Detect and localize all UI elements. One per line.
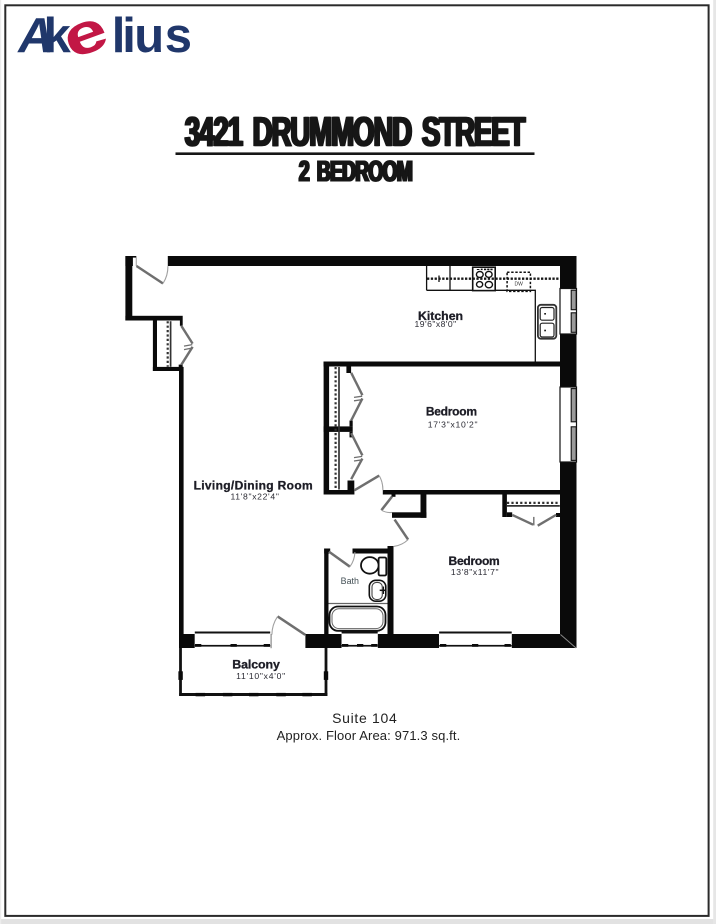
svg-text:Bedroom: Bedroom — [426, 405, 477, 419]
svg-text:17'3"x10'2": 17'3"x10'2" — [428, 420, 479, 430]
svg-text:2 BEDROOM: 2 BEDROOM — [299, 156, 412, 188]
svg-text:Balcony: Balcony — [232, 657, 280, 671]
svg-text:u: u — [134, 9, 164, 63]
svg-text:Suite 104: Suite 104 — [332, 710, 397, 726]
svg-text:DW: DW — [515, 282, 524, 288]
svg-text:Bedroom: Bedroom — [449, 554, 500, 568]
svg-text:s: s — [165, 9, 192, 63]
svg-text:3421 DRUMMOND STREET: 3421 DRUMMOND STREET — [185, 109, 525, 155]
svg-text:13'8"x11'7": 13'8"x11'7" — [451, 567, 499, 577]
svg-text:11'8"x22'4": 11'8"x22'4" — [230, 491, 279, 501]
svg-text:Bath: Bath — [341, 576, 359, 586]
svg-text:Approx. Floor Area: 971.3 sq.f: Approx. Floor Area: 971.3 sq.ft. — [277, 728, 461, 743]
svg-text:11'10"x4'0": 11'10"x4'0" — [236, 671, 286, 681]
svg-text:19'6"x8'0": 19'6"x8'0" — [415, 319, 457, 329]
svg-text:Living/Dining Room: Living/Dining Room — [194, 478, 313, 492]
